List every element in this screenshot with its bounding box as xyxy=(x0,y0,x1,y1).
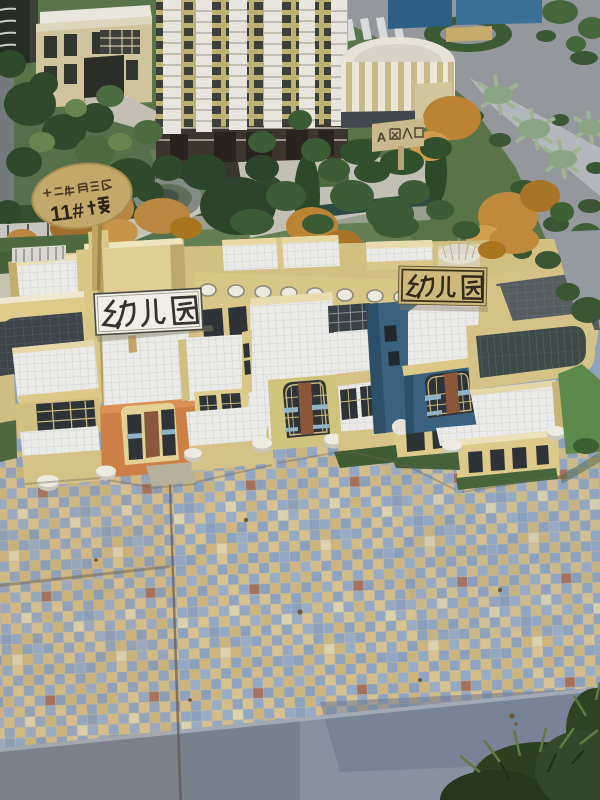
svg-text:11#: 11# xyxy=(49,199,86,227)
svg-text:A: A xyxy=(376,129,387,145)
